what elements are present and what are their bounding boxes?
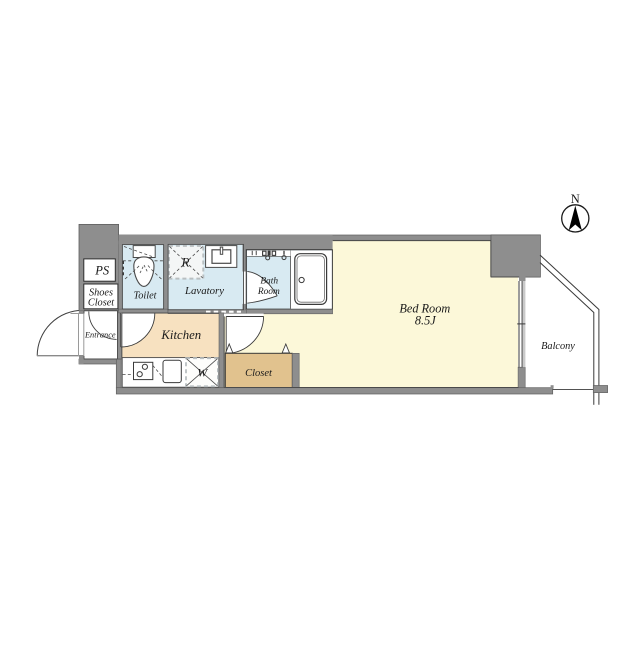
svg-text:Toilet: Toilet [133, 291, 157, 302]
svg-text:Closet: Closet [245, 368, 273, 379]
svg-text:Closet: Closet [88, 297, 115, 308]
svg-text:W: W [197, 366, 208, 380]
svg-text:Entrance: Entrance [84, 330, 116, 339]
svg-text:Kitchen: Kitchen [160, 328, 201, 342]
svg-text:Balcony: Balcony [541, 341, 575, 352]
svg-text:Room: Room [257, 287, 280, 297]
svg-text:R: R [181, 255, 190, 270]
svg-text:Bath: Bath [260, 277, 278, 287]
svg-text:Lavatory: Lavatory [184, 285, 224, 297]
svg-text:N: N [571, 192, 580, 206]
svg-text:8.5J: 8.5J [415, 313, 436, 327]
svg-text:PS: PS [94, 264, 110, 278]
